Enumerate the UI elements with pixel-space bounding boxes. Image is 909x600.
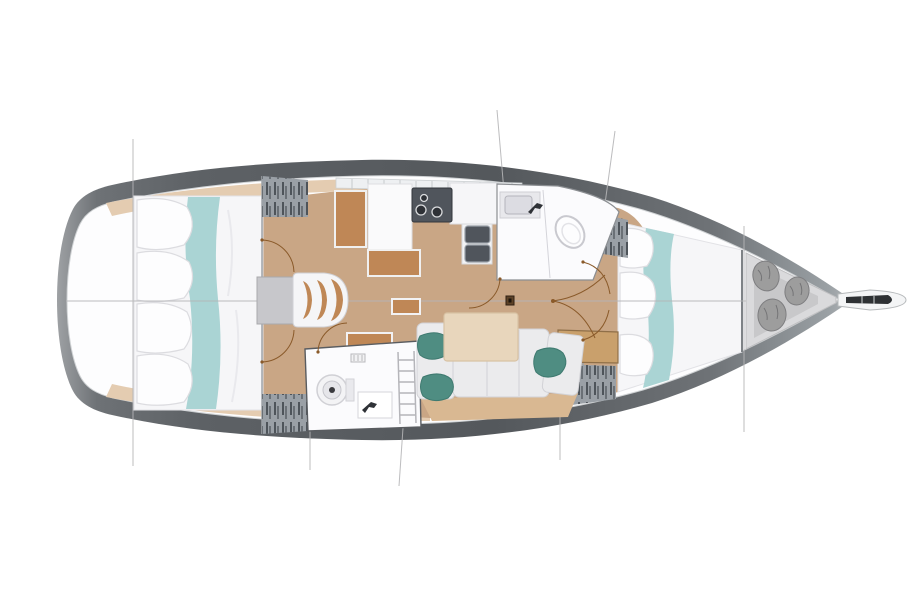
mast-step-core <box>509 299 512 303</box>
sink-bowl <box>465 245 490 262</box>
hinge-dot <box>581 338 584 341</box>
sink-bowl <box>465 226 490 243</box>
yacht-floorplan <box>0 0 909 600</box>
aft-cabin <box>134 196 263 410</box>
yacht-floorplan-canvas <box>0 0 909 600</box>
vent-grille <box>351 354 365 362</box>
hinge-dot <box>498 277 501 280</box>
mast-step <box>506 296 514 305</box>
pillow <box>137 303 191 353</box>
counter-right <box>450 183 498 224</box>
galley-sinks <box>462 224 492 264</box>
toilet-drain <box>329 387 335 393</box>
hinge-dot <box>316 350 319 353</box>
pillow <box>620 272 656 319</box>
wardrobe-louvers <box>262 394 308 434</box>
teal-pillow <box>534 348 566 377</box>
toilet-tank <box>346 379 354 401</box>
dinette-table <box>444 313 518 361</box>
hinge-dot <box>551 299 555 303</box>
pillow <box>137 199 192 250</box>
pillow <box>137 251 193 301</box>
galley-island <box>368 250 420 276</box>
hinge-dot <box>260 360 263 363</box>
bowsprit <box>838 290 906 310</box>
washbasin <box>505 196 532 214</box>
wardrobe <box>262 176 308 217</box>
stove-top <box>412 188 452 222</box>
galley-counter <box>368 184 412 258</box>
teal-pillow <box>421 374 454 401</box>
wardrobe-louvers <box>262 176 308 217</box>
stove <box>412 188 452 222</box>
burner <box>416 205 426 215</box>
pillow <box>620 334 653 375</box>
wardrobe <box>262 394 308 434</box>
aft-head <box>305 341 421 431</box>
hinge-dot <box>581 260 584 263</box>
curved-bench-seat <box>293 273 348 327</box>
salon-table <box>257 277 298 324</box>
toilet <box>317 375 354 405</box>
pillow <box>137 354 192 405</box>
burner <box>421 195 428 202</box>
burner <box>432 207 442 217</box>
sideboard-chest <box>392 299 420 314</box>
nav-seat <box>335 191 366 247</box>
hinge-dot <box>260 238 263 241</box>
